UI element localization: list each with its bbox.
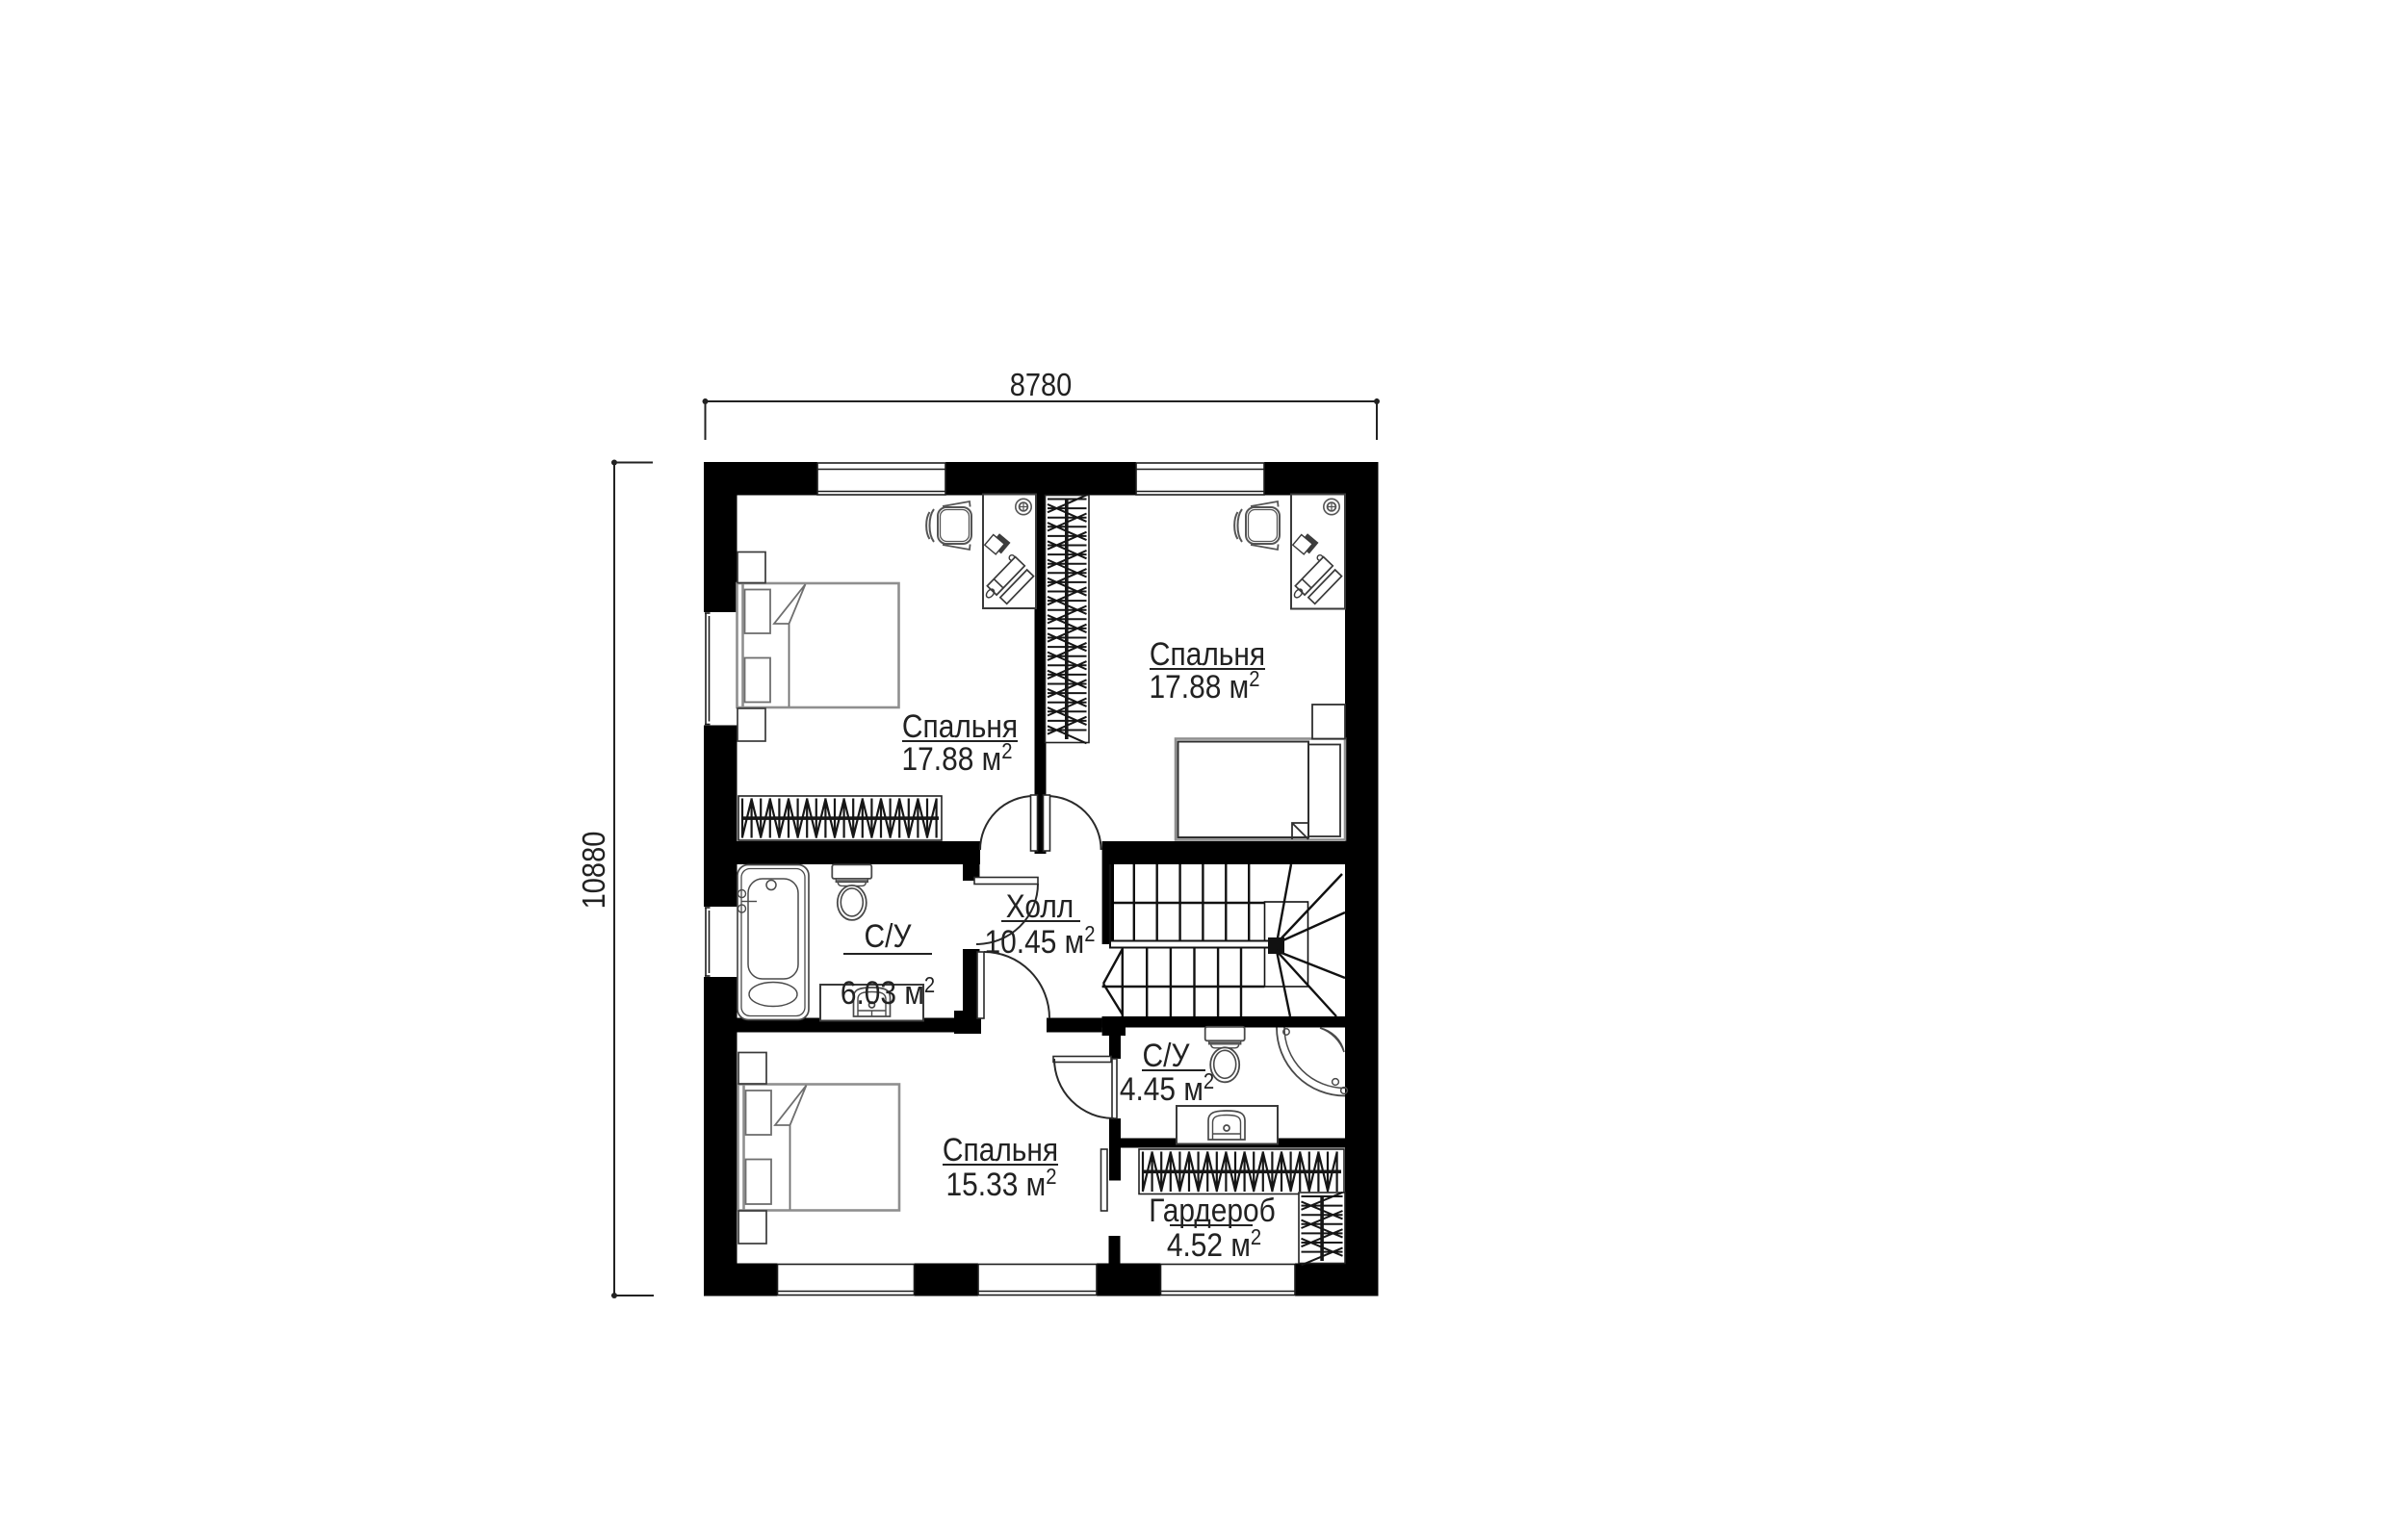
svg-text:4.52 м2: 4.52 м2 [1167, 1224, 1261, 1264]
svg-text:Гардероб: Гардероб [1149, 1192, 1276, 1228]
svg-text:15.33 м2: 15.33 м2 [946, 1164, 1057, 1203]
svg-text:17.88 м2: 17.88 м2 [1150, 666, 1260, 706]
svg-text:6.03 м2: 6.03 м2 [841, 972, 935, 1012]
svg-text:17.88 м2: 17.88 м2 [902, 738, 1013, 778]
svg-text:Спальня: Спальня [902, 707, 1018, 744]
svg-text:4.45 м2: 4.45 м2 [1120, 1068, 1214, 1108]
svg-text:10.45 м2: 10.45 м2 [985, 921, 1096, 961]
svg-text:С/У: С/У [1143, 1037, 1191, 1073]
svg-text:8780: 8780 [1010, 367, 1073, 402]
svg-text:Спальня: Спальня [1150, 635, 1265, 672]
svg-text:Спальня: Спальня [943, 1131, 1058, 1168]
svg-text:10880: 10880 [576, 832, 611, 910]
svg-text:С/У: С/У [865, 917, 913, 954]
svg-text:Холл: Холл [1006, 887, 1074, 924]
